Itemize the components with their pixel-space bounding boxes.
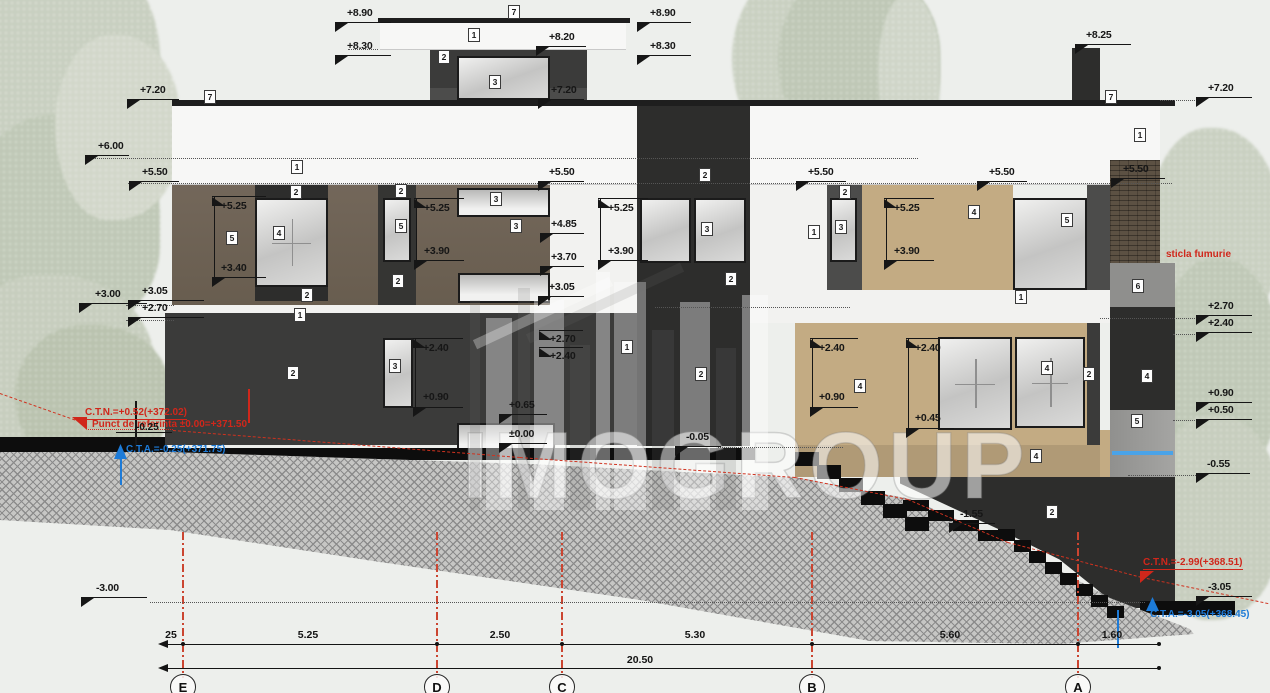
dim-tick	[1076, 642, 1080, 646]
elevation-marker-label: +4.85	[551, 218, 577, 230]
elevation-marker-line	[1075, 44, 1131, 45]
elevation-marker-flag-icon	[796, 182, 809, 191]
grid-bubble: E	[170, 674, 196, 693]
dim-arrow-icon	[158, 664, 168, 672]
dim-connector	[908, 338, 909, 429]
annotation-text: -0.25	[136, 422, 159, 433]
level-dotted-line	[1173, 420, 1197, 421]
elevation-marker-line	[1196, 332, 1252, 333]
ref-label: 7	[204, 90, 216, 104]
dim-connector	[415, 338, 416, 408]
dim-tick	[181, 642, 185, 646]
ref-label: 2	[695, 367, 707, 381]
elevation-marker-line	[598, 260, 648, 261]
level-dotted-line	[90, 158, 918, 159]
elevation-marker-flag-icon	[884, 261, 897, 270]
elevation-marker-line	[1196, 97, 1252, 98]
elevation-marker-line	[536, 46, 586, 47]
elevation-marker-flag-icon	[1196, 474, 1209, 483]
elevation-marker-line	[810, 338, 858, 339]
elevation-marker-line	[675, 446, 721, 447]
elevation-marker-label: +2.40	[915, 342, 941, 354]
elevation-marker-line	[129, 181, 179, 182]
ref-label: 2	[438, 50, 450, 64]
dimension-label: 1.60	[1102, 629, 1122, 641]
dim-tick	[560, 642, 564, 646]
annotation-text: Punct de referinta ±0.00=+371.50	[92, 419, 247, 430]
elevation-marker-line	[540, 233, 584, 234]
elevation-marker-line	[540, 266, 584, 267]
ref-label: 4	[273, 226, 285, 240]
elevation-marker-label: +2.70	[1208, 300, 1234, 312]
dimension-label: 25	[165, 629, 177, 641]
dim-tick	[1157, 666, 1161, 670]
elevation-marker-line	[538, 181, 584, 182]
elevation-marker-flag-icon	[1196, 597, 1209, 606]
ref-label: 4	[968, 205, 980, 219]
elevation-marker-label: +5.50	[549, 166, 575, 178]
ref-label: 5	[1061, 213, 1073, 227]
elevation-marker-label: +5.25	[608, 202, 634, 214]
elevation-marker-line	[884, 260, 934, 261]
ref-label: 2	[699, 168, 711, 182]
elevation-marker-label: +3.00	[95, 288, 121, 300]
elevation-marker-label: +3.90	[894, 245, 920, 257]
ref-label: 1	[468, 28, 480, 42]
ref-label: 2	[287, 366, 299, 380]
annotation-text: C.T.A.=-3.05(+368.45)	[1150, 609, 1250, 620]
elevation-marker-flag-icon	[499, 444, 512, 453]
elevation-marker-line	[538, 296, 584, 297]
elevation-marker-label: +8.30	[650, 40, 676, 52]
elevation-marker-line	[499, 443, 547, 444]
elevation-marker-label: +5.25	[221, 200, 247, 212]
elevation-marker-label: +7.20	[551, 84, 577, 96]
elevation-marker-label: +3.05	[142, 285, 168, 297]
elevation-marker-flag-icon	[906, 429, 919, 438]
elevation-marker-label: +7.20	[140, 84, 166, 96]
elevation-marker-label: +2.70	[550, 333, 576, 345]
terrain-red-dashed-line	[1142, 577, 1268, 604]
elevation-marker-flag-icon	[81, 598, 94, 607]
elevation-marker-label: +3.70	[551, 251, 577, 263]
ref-label: 5	[395, 219, 407, 233]
elevation-marker-flag-icon	[540, 234, 553, 243]
elevation-marker-label: +0.90	[819, 391, 845, 403]
dimension-label: 5.25	[298, 629, 318, 641]
elevation-marker-flag-icon	[675, 447, 688, 456]
elevation-marker-flag-icon	[1196, 420, 1209, 429]
elevation-marker-label: +2.40	[819, 342, 845, 354]
elevation-marker-line	[499, 414, 547, 415]
elevation-marker-line	[335, 22, 391, 23]
elevation-marker-flag-icon	[413, 408, 426, 417]
elevation-marker-flag-icon	[127, 100, 140, 109]
ref-label: 2	[839, 185, 851, 199]
elevation-marker-label: +3.90	[424, 245, 450, 257]
elevation-marker-flag-icon	[1196, 98, 1209, 107]
ref-label: 7	[1105, 90, 1117, 104]
ref-label: 3	[510, 219, 522, 233]
ref-label: 1	[1134, 128, 1146, 142]
elevation-marker-label: +2.40	[550, 350, 576, 362]
elevation-marker-flag-icon	[499, 415, 512, 424]
elevation-marker-line	[1196, 596, 1252, 597]
elevation-marker-flag-icon	[1196, 333, 1209, 342]
ref-label: 2	[301, 288, 313, 302]
ref-label: 6	[1132, 279, 1144, 293]
elevation-marker-label: +5.50	[1123, 163, 1149, 175]
level-dotted-line	[150, 602, 1145, 603]
elevation-marker-label: -3.00	[96, 582, 119, 594]
elevation-marker-line	[539, 330, 583, 331]
elevation-marker-line	[335, 55, 391, 56]
level-dotted-line	[1100, 318, 1197, 319]
ref-label: 5	[1131, 414, 1143, 428]
annotation-layer: +8.90+8.30+7.20+6.00+5.50+3.00+3.05+2.70…	[0, 0, 1270, 693]
elevation-marker-line	[637, 55, 691, 56]
ref-label: 2	[290, 185, 302, 199]
elevation-marker-line	[637, 22, 691, 23]
terrain-red-dashed-line	[908, 499, 1008, 543]
elevation-marker-flag-icon	[538, 100, 551, 109]
elevation-marker-label: +6.00	[98, 140, 124, 152]
ref-label: 5	[226, 231, 238, 245]
elevation-marker-label: +3.90	[608, 245, 634, 257]
elevation-marker-line	[413, 407, 463, 408]
elevation-marker-line	[81, 597, 147, 598]
elevation-marker-flag-icon	[414, 261, 427, 270]
elevation-marker-flag-icon	[538, 182, 551, 191]
dim-connector	[812, 338, 813, 408]
elevation-marker-label: +5.50	[142, 166, 168, 178]
elevation-marker-label: +8.90	[347, 7, 373, 19]
elevation-marker-flag-icon	[810, 408, 823, 417]
grid-bubble: C	[549, 674, 575, 693]
elevation-marker-line	[414, 198, 464, 199]
elevation-marker-label: +0.90	[1208, 387, 1234, 399]
elevation-marker-line	[413, 338, 463, 339]
elevation-marker-line	[906, 338, 954, 339]
elevation-marker-line	[212, 277, 266, 278]
ref-label: 2	[725, 272, 737, 286]
dimension-label: 5.60	[940, 629, 960, 641]
elevation-marker-flag-icon	[536, 47, 549, 56]
elevation-marker-label: +0.65	[509, 399, 535, 411]
elevation-marker-line	[796, 181, 846, 182]
elevation-marker-label: +0.50	[1208, 404, 1234, 416]
ref-label: 2	[392, 274, 404, 288]
dim-tick	[435, 642, 439, 646]
ref-label: 3	[490, 192, 502, 206]
dim-line	[168, 644, 1160, 645]
elevation-marker-label: -0.05	[686, 431, 709, 443]
ref-label: 1	[1015, 290, 1027, 304]
elevation-marker-flag-icon	[1075, 45, 1088, 54]
terrain-red-dashed-line	[520, 457, 795, 478]
elevation-marker-label: +2.70	[142, 302, 168, 314]
elevation-marker-line	[1196, 402, 1252, 403]
grid-bubble: A	[1065, 674, 1091, 693]
ref-label: 2	[1083, 367, 1095, 381]
level-dotted-line	[655, 307, 850, 308]
elevation-marker-flag-icon	[977, 182, 990, 191]
annotation-text: C.T.N.=-2.99(+368.51)	[1143, 557, 1243, 570]
elevation-marker-line	[949, 523, 995, 524]
elevation-marker-line	[539, 347, 583, 348]
elevation-marker-label: +5.25	[424, 202, 450, 214]
elevation-marker-line	[884, 198, 934, 199]
elevation-marker-label: +2.40	[1208, 317, 1234, 329]
elevation-marker-flag-icon	[949, 524, 962, 533]
ref-label: 4	[854, 379, 866, 393]
elevation-marker-label: +8.20	[549, 31, 575, 43]
elevation-marker-line	[127, 99, 179, 100]
level-dotted-line	[1160, 100, 1197, 101]
dim-line-total	[168, 668, 1160, 669]
elevation-marker-line	[977, 181, 1027, 182]
elevation-marker-line	[85, 155, 129, 156]
elevation-marker-label: +0.90	[423, 391, 449, 403]
elevation-marker-label: -0.55	[1207, 458, 1230, 470]
elevation-marker-flag-icon	[212, 278, 225, 287]
elevation-marker-flag-icon	[637, 56, 650, 65]
elevation-marker-label: +3.40	[221, 262, 247, 274]
elevation-marker-flag-icon	[637, 23, 650, 32]
level-dotted-line	[128, 183, 1172, 184]
dim-tick	[1157, 642, 1161, 646]
elevation-marker-label: -3.05	[1208, 581, 1231, 593]
ref-label: 7	[508, 5, 520, 19]
elevation-marker-label: +8.30	[347, 40, 373, 52]
elevation-marker-flag-icon	[79, 304, 92, 313]
ref-label: 1	[291, 160, 303, 174]
elevation-marker-line	[1196, 315, 1252, 316]
elevation-marker-flag-icon	[335, 23, 348, 32]
ref-label: 1	[621, 340, 633, 354]
dimension-label: 2.50	[490, 629, 510, 641]
ref-label: 4	[1041, 361, 1053, 375]
grid-bubble: D	[424, 674, 450, 693]
leader-line	[248, 389, 250, 423]
annotation-text: C.T.A.=-0.25(+371.75)	[126, 444, 226, 455]
ref-label: 2	[395, 184, 407, 198]
elevation-marker-label: +5.25	[894, 202, 920, 214]
elevation-marker-label: +7.20	[1208, 82, 1234, 94]
dim-connector	[214, 196, 215, 278]
elevation-marker-label: +5.50	[989, 166, 1015, 178]
elevation-marker-label: +8.25	[1086, 29, 1112, 41]
elevation-marker-line	[1196, 473, 1250, 474]
dim-arrow-icon	[158, 640, 168, 648]
level-dotted-line	[1128, 475, 1196, 476]
elevation-marker-label: +2.40	[423, 342, 449, 354]
elevation-marker-line	[128, 317, 204, 318]
survey-flag-icon	[1140, 571, 1154, 583]
ref-label: 1	[294, 308, 306, 322]
ref-label: 2	[1046, 505, 1058, 519]
elevation-marker-line	[538, 99, 584, 100]
ref-label: 4	[1030, 449, 1042, 463]
dimension-label: 5.30	[685, 629, 705, 641]
ref-label: 3	[389, 359, 401, 373]
leader-line	[120, 459, 122, 485]
terrain-red-dashed-line	[795, 477, 908, 500]
elevation-marker-line	[1196, 419, 1252, 420]
ref-label: 3	[835, 220, 847, 234]
elevation-marker-line	[1111, 178, 1165, 179]
elevation-marker-line	[212, 196, 266, 197]
ref-label: 3	[701, 222, 713, 236]
elevation-marker-label: -1.55	[960, 508, 983, 520]
elevation-marker-flag-icon	[598, 261, 611, 270]
terrain-red-dashed-line	[1008, 542, 1142, 578]
elevation-marker-line	[128, 300, 204, 301]
elevation-marker-label: +3.05	[549, 281, 575, 293]
level-dotted-line	[718, 447, 843, 448]
ref-label: 3	[489, 75, 501, 89]
elevation-marker-label: +5.50	[808, 166, 834, 178]
grid-bubble: B	[799, 674, 825, 693]
elevation-marker-flag-icon	[538, 297, 551, 306]
elevation-marker-line	[598, 198, 648, 199]
dimension-total-label: 20.50	[627, 654, 653, 666]
elevation-marker-line	[906, 428, 954, 429]
ref-label: 1	[808, 225, 820, 239]
elevation-marker-line	[414, 260, 464, 261]
ref-label: 4	[1141, 369, 1153, 383]
elevation-marker-flag-icon	[335, 56, 348, 65]
level-dotted-line	[1173, 334, 1197, 335]
terrain-red-dashed-line	[0, 393, 85, 424]
annotation-text: sticla fumurie	[1166, 249, 1231, 260]
elevation-marker-label: +0.45	[915, 412, 941, 424]
elevation-marker-line	[810, 407, 858, 408]
elevation-drawing: IMOGROUP +8.90+8.30+7.20+6.00+5.50+3.00+…	[0, 0, 1270, 693]
elevation-marker-label: ±0.00	[509, 428, 534, 440]
elevation-marker-flag-icon	[540, 267, 553, 276]
dim-tick	[810, 642, 814, 646]
elevation-marker-label: +8.90	[650, 7, 676, 19]
